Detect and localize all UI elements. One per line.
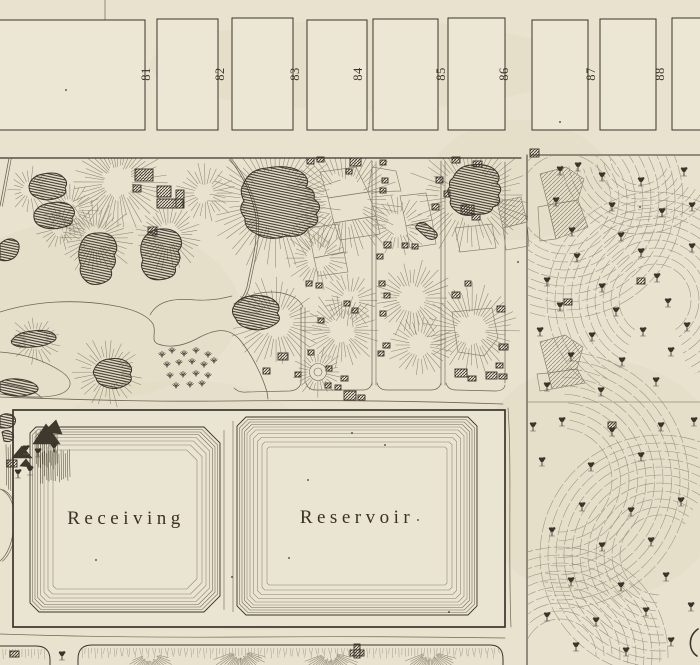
ink-speck: [351, 432, 353, 434]
street-number-label: 85: [434, 67, 448, 81]
building: [564, 299, 572, 305]
building: [317, 157, 324, 162]
building: [148, 227, 157, 235]
street-number-label: 82: [213, 67, 227, 81]
receiving-reservoir-label-right: Reservoir: [300, 507, 414, 528]
building: [382, 178, 388, 183]
building: [352, 308, 358, 313]
rock-outcrop: [141, 229, 182, 280]
building: [497, 306, 505, 312]
city-block: [373, 19, 438, 130]
building: [432, 204, 439, 210]
ink-speck: [417, 519, 419, 521]
map-svg: Receiving Reservoir 8182838485868788: [0, 0, 700, 665]
building: [10, 651, 19, 657]
building: [444, 191, 450, 197]
street-number-label: 87: [584, 67, 598, 81]
rock-outcrop: [79, 233, 117, 285]
building: [263, 368, 270, 374]
building: [383, 343, 390, 348]
rock-outcrop: [34, 202, 75, 229]
building: [380, 311, 386, 316]
building: [344, 391, 356, 400]
building: [377, 254, 383, 259]
building: [608, 422, 616, 428]
building: [452, 157, 460, 163]
ink-speck: [95, 559, 97, 561]
ink-speck: [517, 261, 519, 263]
building: [176, 190, 184, 208]
street-number-label: 84: [351, 67, 365, 81]
ink-speck: [288, 557, 290, 559]
city-block: [672, 18, 700, 130]
building: [436, 177, 443, 183]
city-block: [600, 19, 656, 130]
building: [341, 376, 348, 381]
building: [308, 350, 314, 355]
building: [344, 301, 350, 306]
building: [318, 318, 324, 323]
ink-speck: [307, 479, 309, 481]
building: [295, 372, 301, 377]
building: [412, 244, 418, 249]
building: [468, 376, 476, 381]
building: [472, 214, 480, 220]
rock-outcrop: [2, 431, 14, 442]
building: [380, 160, 386, 165]
building: [465, 281, 471, 286]
building: [452, 292, 460, 298]
building: [306, 281, 312, 286]
building: [358, 395, 365, 400]
ink-speck: [384, 444, 386, 446]
ink-speck: [231, 576, 233, 578]
building: [499, 344, 508, 350]
street-number-label: 88: [653, 67, 667, 81]
building: [384, 242, 391, 248]
city-block: [157, 19, 218, 130]
receiving-reservoir-label-left: Receiving: [67, 508, 185, 529]
street-number-label: 86: [497, 67, 511, 81]
ink-speck: [639, 206, 641, 208]
building: [530, 149, 539, 157]
building: [499, 374, 507, 379]
city-block: [532, 20, 588, 130]
building: [637, 278, 645, 284]
ink-speck: [559, 121, 561, 123]
historic-map-page: Receiving Reservoir 8182838485868788: [0, 0, 700, 665]
city-block: [232, 18, 293, 130]
building: [335, 385, 341, 390]
rock-outcrop: [0, 414, 16, 428]
rock-outcrop: [29, 173, 67, 200]
building: [354, 644, 360, 658]
building: [486, 372, 497, 379]
building: [379, 281, 385, 286]
building: [133, 185, 141, 192]
street-number-label: 81: [139, 67, 153, 81]
building: [402, 243, 408, 248]
ink-speck: [448, 611, 450, 613]
street-number-label: 83: [288, 67, 302, 81]
building: [455, 369, 467, 377]
building: [473, 161, 482, 167]
building: [157, 186, 171, 197]
building: [7, 460, 17, 467]
building: [316, 283, 322, 288]
rock-outcrop: [232, 296, 279, 330]
ink-speck: [65, 89, 67, 91]
building: [326, 366, 332, 371]
building: [380, 188, 386, 193]
building: [135, 169, 153, 181]
building: [350, 158, 361, 166]
building: [278, 353, 288, 360]
building: [461, 205, 474, 214]
building: [496, 363, 503, 368]
building: [384, 293, 390, 298]
building: [346, 169, 352, 174]
city-block: [0, 20, 145, 130]
building: [307, 158, 314, 164]
building: [325, 383, 331, 388]
building: [378, 351, 384, 356]
